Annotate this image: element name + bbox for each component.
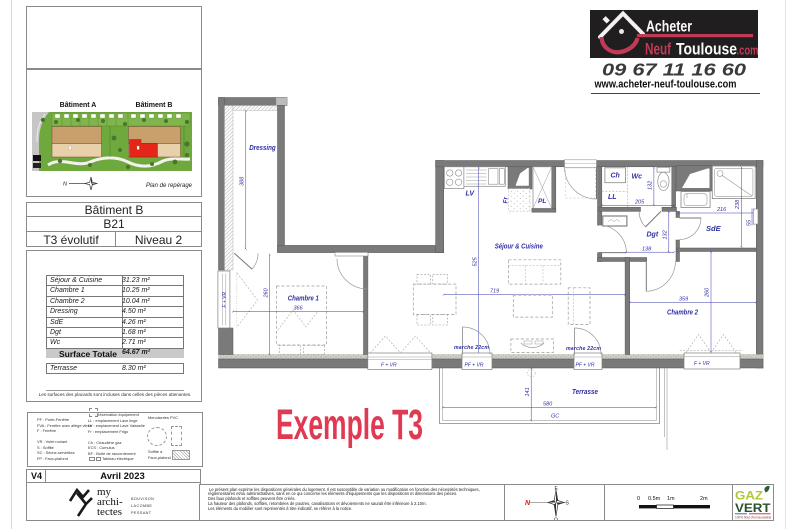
- svg-text:LV: LV: [466, 191, 476, 198]
- svg-text:366: 366: [294, 306, 304, 312]
- svg-text:BOUVISON: BOUVISON: [131, 497, 154, 501]
- svg-text:LACOMBE: LACOMBE: [131, 504, 152, 508]
- svg-text:205: 205: [634, 199, 645, 205]
- svg-text:PESSANT: PESSANT: [131, 511, 152, 515]
- svg-text:09 67 11 16 60: 09 67 11 16 60: [602, 60, 746, 80]
- svg-text:525: 525: [472, 256, 478, 266]
- svg-text:F + VR: F + VR: [222, 292, 228, 308]
- svg-text:55: 55: [747, 219, 753, 226]
- svg-text:359: 359: [679, 296, 688, 302]
- svg-text:238: 238: [735, 199, 741, 210]
- svg-text:132: 132: [648, 181, 654, 190]
- svg-text:138: 138: [642, 246, 652, 252]
- svg-text:388: 388: [240, 176, 246, 186]
- svg-text:F + VR: F + VR: [694, 361, 710, 367]
- svg-text:N: N: [63, 182, 67, 188]
- svg-text:Toulouse: Toulouse: [676, 40, 737, 59]
- svg-text:Neuf: Neuf: [645, 40, 671, 59]
- svg-text:GC: GC: [551, 414, 559, 420]
- svg-text:132: 132: [663, 230, 669, 239]
- svg-text:www.acheter-neuf-toulouse.com: www.acheter-neuf-toulouse.com: [594, 78, 737, 90]
- svg-text:Acheter: Acheter: [646, 19, 692, 36]
- svg-text:tectes: tectes: [97, 506, 122, 518]
- svg-text:Séjour & Cuisine: Séjour & Cuisine: [495, 241, 543, 250]
- svg-text:Ch: Ch: [611, 173, 620, 180]
- svg-text:marche 22cm: marche 22cm: [566, 346, 601, 352]
- svg-text:719: 719: [490, 289, 499, 295]
- svg-text:141: 141: [525, 387, 531, 396]
- svg-text:PL: PL: [538, 198, 546, 205]
- svg-text:Wc: Wc: [632, 174, 643, 181]
- svg-text:Dressing: Dressing: [249, 143, 276, 152]
- svg-text:PF + VR: PF + VR: [576, 362, 595, 368]
- svg-text:marche 22cm: marche 22cm: [454, 345, 489, 351]
- svg-text:PF + VR: PF + VR: [465, 362, 484, 368]
- svg-text:.com: .com: [737, 44, 759, 58]
- svg-text:Dgt: Dgt: [647, 232, 659, 239]
- svg-text:SdE: SdE: [706, 224, 722, 233]
- svg-text:Chambre 2: Chambre 2: [667, 308, 699, 317]
- svg-text:Terrasse: Terrasse: [572, 389, 598, 396]
- svg-text:Chambre 1: Chambre 1: [288, 294, 319, 303]
- svg-text:F + VR: F + VR: [381, 362, 397, 368]
- svg-text:Fr: Fr: [503, 197, 510, 204]
- svg-text:260: 260: [263, 287, 269, 298]
- svg-text:216: 216: [716, 207, 727, 213]
- svg-text:260: 260: [705, 287, 711, 298]
- svg-text:LL: LL: [608, 194, 617, 201]
